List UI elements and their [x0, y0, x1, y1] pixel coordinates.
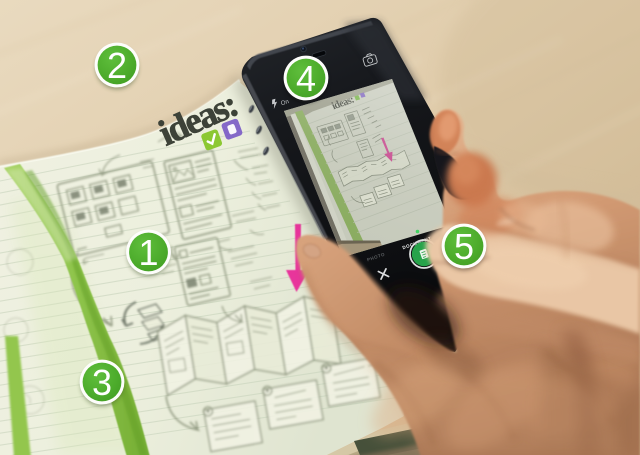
- svg-text:3: 3: [92, 362, 112, 403]
- svg-text:2: 2: [107, 45, 127, 86]
- svg-text:4: 4: [296, 58, 316, 99]
- svg-text:1: 1: [138, 232, 158, 273]
- svg-text:5: 5: [454, 226, 474, 267]
